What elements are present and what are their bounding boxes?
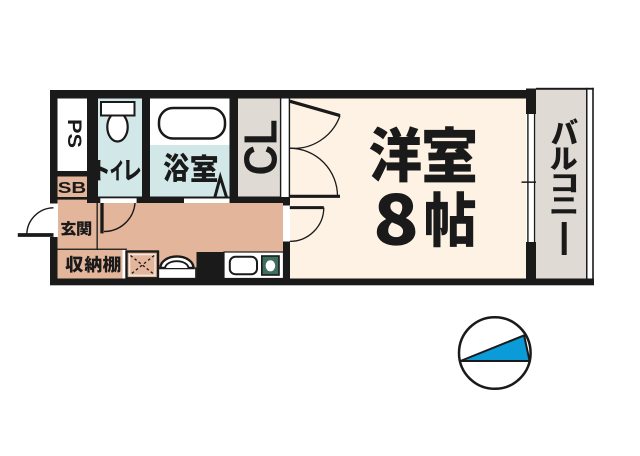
svg-text:PS: PS bbox=[63, 119, 85, 148]
svg-text:CL: CL bbox=[235, 119, 287, 175]
svg-text:SB: SB bbox=[58, 180, 87, 197]
